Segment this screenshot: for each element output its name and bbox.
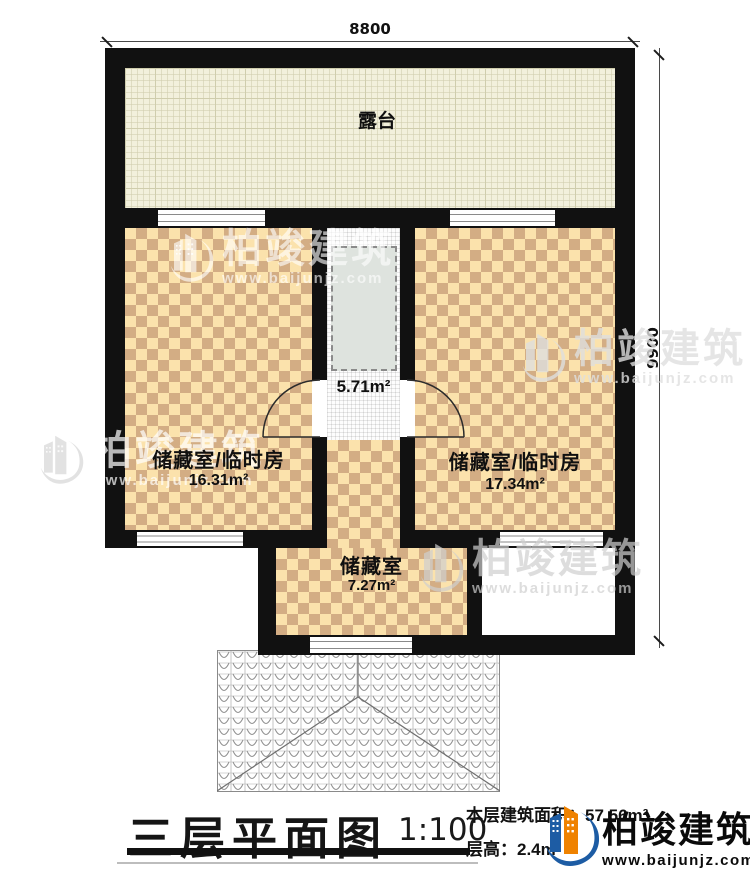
stair-void — [331, 246, 397, 371]
wall — [105, 48, 635, 68]
drawing-title: 三层平面图 — [128, 802, 388, 867]
wall — [400, 228, 415, 380]
wall — [312, 228, 327, 380]
window — [450, 210, 555, 226]
dimension-tick — [101, 36, 112, 47]
title-underline-thin — [117, 862, 478, 864]
dimension-width-label: 8800 — [335, 20, 405, 38]
dimension-line-top — [100, 41, 640, 42]
wall — [105, 48, 125, 548]
dimension-height-label: 9900 — [644, 318, 660, 378]
dimension-tick — [627, 36, 638, 47]
room-area-right-storage: 17.34m² — [415, 476, 615, 494]
room-area-stairwell: 5.71m² — [317, 378, 410, 397]
room-area-bottom-storage: 7.27m² — [276, 578, 467, 595]
window — [500, 532, 603, 546]
window — [310, 637, 412, 653]
logo-brand-name: 柏竣建筑 — [602, 801, 750, 853]
floor-plan-page: 露台 储藏室/临时房 16.31m² 储藏室/临时房 17.34m² 5.71m… — [0, 0, 750, 879]
room-label-left-storage: 储藏室/临时房 — [125, 450, 312, 472]
room-label-terrace: 露台 — [327, 112, 427, 133]
room-area-left-storage: 16.31m² — [125, 472, 312, 490]
window — [137, 532, 243, 546]
wall — [615, 48, 635, 655]
hall-neck-floor — [327, 440, 400, 548]
brand-logo: 柏竣建筑 www.baijunjz.com — [540, 795, 750, 877]
terrace-floor — [125, 68, 615, 208]
logo-brand-url: www.baijunjz.com — [602, 852, 750, 869]
window — [158, 210, 265, 226]
hip-roof-plan — [217, 650, 500, 792]
wall — [467, 548, 482, 637]
room-label-bottom-storage: 储藏室 — [276, 556, 467, 578]
watermark-building-icon — [36, 430, 84, 488]
title-underline — [127, 848, 470, 855]
room-label-right-storage: 储藏室/临时房 — [415, 452, 615, 474]
logo-building-icon — [540, 799, 600, 871]
